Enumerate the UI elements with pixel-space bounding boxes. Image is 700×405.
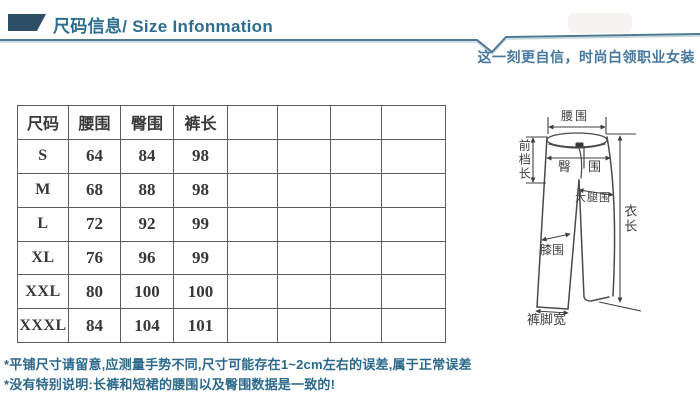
value-cell [382, 241, 446, 275]
value-cell [228, 275, 278, 309]
value-cell [278, 275, 331, 309]
table-row: S 64 84 98 [18, 139, 446, 173]
value-cell: 64 [69, 139, 121, 173]
leg-opening-label: 裤脚宽 [527, 313, 566, 327]
note-line: *没有特别说明:长裤和短裙的腰围以及臀围数据是一致的! [4, 375, 472, 395]
value-cell: 99 [174, 207, 228, 241]
value-cell: 96 [121, 241, 174, 275]
value-cell: 84 [69, 309, 121, 343]
value-cell: 76 [69, 241, 121, 275]
value-cell: 98 [174, 139, 228, 173]
value-cell [278, 173, 331, 207]
value-cell [331, 275, 382, 309]
garment-length-label: 衣长 [622, 204, 636, 234]
size-cell: XXL [18, 275, 69, 309]
fly-button [576, 143, 584, 148]
watermark [568, 13, 632, 33]
value-cell: 98 [174, 173, 228, 207]
value-cell [382, 139, 446, 173]
table-row: L 72 92 99 [18, 207, 446, 241]
front-rise-label: 前档长 [517, 139, 530, 181]
table-row: M 68 88 98 [18, 173, 446, 207]
value-cell [228, 309, 278, 343]
pants-diagram-drawing [505, 98, 700, 345]
value-cell: 99 [174, 241, 228, 275]
value-cell [228, 139, 278, 173]
table-row: XXL 80 100 100 [18, 275, 446, 309]
column-header: 裤长 [174, 106, 228, 140]
table-row: XL 76 96 99 [18, 241, 446, 275]
size-cell: M [18, 173, 69, 207]
brand-tagline: 这一刻更自信，时尚白领职业女装 [478, 47, 696, 67]
value-cell [278, 139, 331, 173]
size-cell: XXXL [18, 309, 69, 343]
value-cell: 92 [121, 207, 174, 241]
size-cell: XL [18, 241, 69, 275]
value-cell [228, 173, 278, 207]
value-cell: 68 [69, 173, 121, 207]
value-cell [382, 173, 446, 207]
value-cell: 88 [121, 173, 174, 207]
value-cell: 104 [121, 309, 174, 343]
value-cell [382, 309, 446, 343]
size-info-page: 尺码信息/ Size Infonmation 这一刻更自信，时尚白领职业女装 尺… [0, 0, 700, 405]
value-cell [331, 173, 382, 207]
page-title: 尺码信息/ Size Infonmation [53, 12, 273, 37]
column-header [278, 106, 331, 140]
value-cell [331, 139, 382, 173]
value-cell [278, 207, 331, 241]
note-line: *平铺尺寸请留意,应测量手势不同,尺寸可能存在1~2cm左右的误差,属于正常误差 [4, 355, 472, 375]
column-header [228, 106, 278, 140]
value-cell [228, 207, 278, 241]
size-cell: L [18, 207, 69, 241]
pants-measurement-diagram: 腰围 前档长 臀围 大腿围 衣长 膝围 裤脚宽 [505, 98, 700, 345]
table-header-row: 尺码 腰围 臀围 裤长 [18, 106, 446, 140]
value-cell [331, 207, 382, 241]
size-table: 尺码 腰围 臀围 裤长 S 64 84 98 M 68 88 98 [17, 105, 446, 343]
value-cell [278, 309, 331, 343]
column-header: 尺码 [18, 106, 69, 140]
header-flag-icon [8, 14, 46, 31]
value-cell [382, 207, 446, 241]
column-header: 腰围 [69, 106, 121, 140]
waist-label: 腰围 [561, 110, 589, 123]
value-cell: 100 [174, 275, 228, 309]
value-cell: 84 [121, 139, 174, 173]
thigh-label: 大腿围 [575, 192, 611, 204]
value-cell [278, 241, 331, 275]
hip-label: 臀围 [558, 160, 618, 174]
value-cell [228, 241, 278, 275]
value-cell: 72 [69, 207, 121, 241]
value-cell [331, 241, 382, 275]
column-header [331, 106, 382, 140]
knee-label: 膝围 [540, 244, 564, 257]
value-cell [382, 275, 446, 309]
column-header [382, 106, 446, 140]
value-cell: 80 [69, 275, 121, 309]
value-cell: 101 [174, 309, 228, 343]
footnotes: *平铺尺寸请留意,应测量手势不同,尺寸可能存在1~2cm左右的误差,属于正常误差… [4, 355, 472, 395]
column-header: 臀围 [121, 106, 174, 140]
size-cell: S [18, 139, 69, 173]
table-row: XXXL 84 104 101 [18, 309, 446, 343]
value-cell [331, 309, 382, 343]
value-cell: 100 [121, 275, 174, 309]
